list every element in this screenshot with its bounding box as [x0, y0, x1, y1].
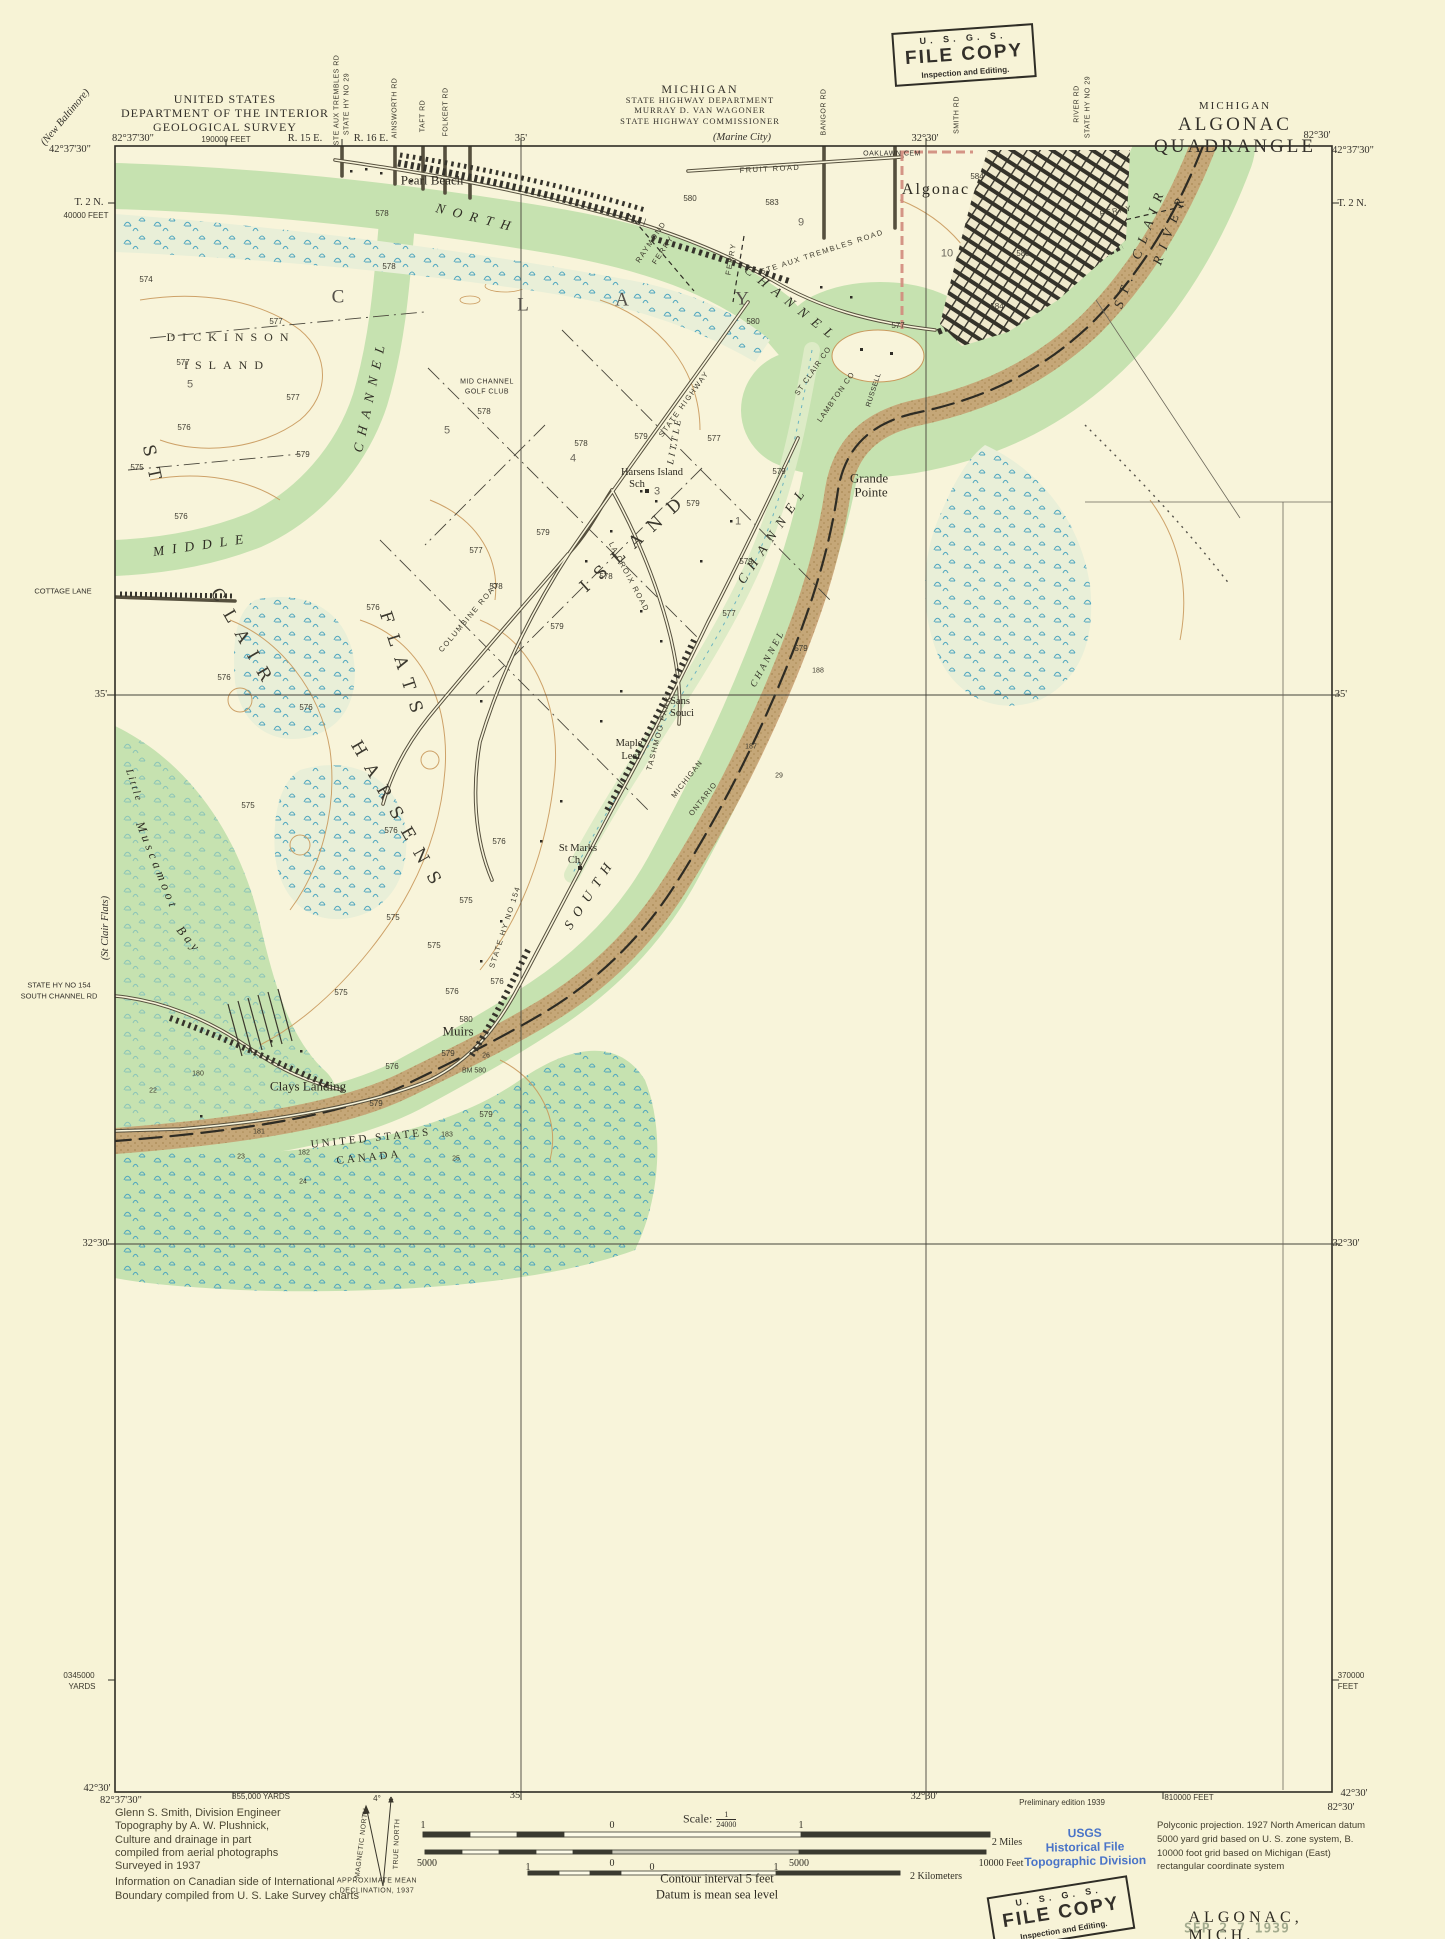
margin-label: T. 2 N. — [75, 198, 104, 209]
spot-elevation: 577 — [286, 394, 299, 402]
spot-elevation: 579 — [536, 529, 549, 537]
spot-elevation: 577 — [707, 435, 720, 443]
map-label: Maple — [616, 739, 643, 750]
scale-bars — [423, 1832, 990, 1875]
margin-label: BANGOR RD — [821, 89, 828, 136]
spot-elevation: 579 — [296, 451, 309, 459]
spot-elevation: 4 — [570, 454, 576, 465]
margin-label: Preliminary edition 1939 — [1019, 1799, 1105, 1807]
spot-elevation: 578 — [477, 408, 490, 416]
margin-label: 1 — [421, 1821, 426, 1831]
spot-elevation: 575 — [130, 464, 143, 472]
margin-label: 82°30' — [1303, 131, 1330, 142]
spot-elevation: 576 — [492, 838, 505, 846]
spot-elevation: 576 — [299, 704, 312, 712]
margin-label: APPROXIMATE MEAN — [337, 1878, 417, 1885]
margin-label: 82°37'30" — [100, 1796, 142, 1807]
margin-label: (St Clair Flats) — [101, 896, 112, 960]
margin-label: 1 — [799, 1821, 804, 1831]
spot-elevation: 578 — [382, 263, 395, 271]
spot-elevation: 576 — [490, 978, 503, 986]
spot-elevation: 575 — [386, 914, 399, 922]
spot-elevation: 583 — [765, 199, 778, 207]
historical-file-stamp: USGS Historical File Topographic Divisio… — [1024, 1825, 1146, 1869]
projection-block: Polyconic projection. 1927 North America… — [1157, 1819, 1365, 1874]
margin-label: 855,000 YARDS — [232, 1793, 290, 1801]
spot-elevation: 181 — [253, 1129, 265, 1136]
sheet-name: ALGONAC, MICH. — [1189, 1909, 1360, 1939]
margin-label: 5000 — [417, 1859, 437, 1869]
margin-label: 32°30' — [910, 1792, 937, 1803]
spot-elevation: 578 — [489, 583, 502, 591]
spot-elevation: 577 — [891, 322, 904, 330]
margin-label: 4° — [373, 1795, 381, 1803]
spot-elevation: 187 — [745, 744, 757, 751]
margin-label: 810000 FEET — [1164, 1794, 1213, 1802]
spot-elevation: BM 580 — [462, 1068, 486, 1075]
margin-label: 42°30' — [83, 1784, 110, 1795]
margin-label: T. 2 N. — [1338, 199, 1367, 210]
margin-label: 40000 FEET — [64, 212, 109, 220]
margin-label: STE AUX TREMBLES RD — [334, 55, 341, 146]
map-label: Souci — [670, 709, 694, 720]
map-label: Muirs — [442, 1025, 473, 1038]
datum-note: Datum is mean sea level — [656, 1888, 778, 1903]
spot-elevation: 577 — [269, 318, 282, 326]
spot-elevation: 575 — [427, 942, 440, 950]
spot-elevation: 183 — [441, 1132, 453, 1139]
spot-elevation: 577 — [722, 610, 735, 618]
highway-line: MICHIGAN — [620, 84, 780, 95]
spot-elevation: 578 — [375, 210, 388, 218]
file-copy-stamp-top: U. S. G. S. FILE COPY Inspection and Edi… — [891, 23, 1037, 87]
margin-label: 370000 — [1338, 1672, 1365, 1680]
map-label: Pointe — [854, 486, 887, 499]
margin-label: 35' — [510, 1791, 522, 1802]
margin-label: 35' — [515, 134, 527, 145]
map-label: St Marks — [559, 844, 597, 855]
margin-label: COTTAGE LANE — [34, 587, 91, 595]
spot-elevation: 579 — [369, 1100, 382, 1108]
highway-line: MURRAY D. VAN WAGONER — [620, 105, 780, 116]
highway-line: STATE HIGHWAY DEPARTMENT — [620, 95, 780, 106]
margin-label: 1 — [526, 1863, 531, 1873]
margin-label: 2 Miles — [992, 1838, 1022, 1848]
map-label: Grande — [850, 472, 888, 485]
margin-label: 32°30' — [82, 1239, 109, 1250]
spot-elevation: 22 — [149, 1088, 157, 1095]
map-label: Ch — [568, 856, 580, 867]
margin-label: FEET — [1338, 1683, 1358, 1691]
spot-elevation: 580 — [1016, 250, 1029, 258]
credit-line: Boundary compiled from U. S. Lake Survey… — [115, 1890, 359, 1903]
map-label: A — [615, 291, 629, 310]
spot-elevation: 584 — [970, 173, 983, 181]
spot-elevation: 579 — [794, 645, 807, 653]
margin-label: 1 — [774, 1863, 779, 1873]
map-label: Leaf — [621, 752, 640, 763]
spot-elevation: 26 — [482, 1053, 490, 1060]
channel-islet-2 — [460, 296, 480, 304]
spot-elevation: 182 — [298, 1150, 310, 1157]
spot-elevation: 9 — [798, 218, 804, 229]
margin-label: YARDS — [69, 1683, 96, 1691]
map-label: Algonac — [902, 182, 970, 198]
spot-elevation: 575 — [241, 802, 254, 810]
quad-state: MICHIGAN — [1130, 100, 1340, 112]
map-label: Harsens Island — [621, 468, 683, 479]
margin-label: 42°37'30" — [1332, 146, 1374, 157]
agency-line: UNITED STATES — [121, 92, 329, 106]
credit-line: compiled from aerial photographs — [115, 1847, 359, 1860]
credits-block: Glenn S. Smith, Division Engineer Topogr… — [115, 1807, 359, 1903]
spot-elevation: 579 — [479, 1111, 492, 1119]
spot-elevation: 576 — [385, 1063, 398, 1071]
map-graphics — [0, 0, 1445, 1939]
map-label: Clays Landing — [270, 1080, 346, 1093]
map-label: Pearl Beach — [401, 174, 463, 187]
margin-label: 2 Kilometers — [910, 1872, 962, 1882]
spot-elevation: 577 — [176, 359, 189, 367]
spot-elevation: 579 — [550, 623, 563, 631]
margin-label: AINSWORTH RD — [392, 78, 399, 139]
margin-label: SOUTH CHANNEL RD — [21, 992, 98, 1000]
spot-elevation: 25 — [452, 1156, 460, 1163]
margin-label: 42°30' — [1340, 1789, 1367, 1800]
margin-label: 0 — [610, 1859, 615, 1869]
blue-stamp-line: Topographic Division — [1024, 1853, 1146, 1869]
margin-label: 5000 — [789, 1859, 809, 1869]
spot-elevation: 188 — [812, 668, 824, 675]
margin-label: (Marine City) — [713, 133, 771, 144]
spot-elevation: 580 — [746, 318, 759, 326]
scale-numerator: 1 — [716, 1810, 736, 1820]
margin-label: 0 — [610, 1821, 615, 1831]
margin-label: 35' — [1335, 690, 1347, 701]
margin-label: 10000 Feet — [979, 1859, 1024, 1869]
scale-text: Scale:124000 — [683, 1810, 736, 1829]
margin-label: DECLINATION, 1937 — [340, 1888, 415, 1895]
spot-elevation: 576 — [384, 827, 397, 835]
margin-label: 42°37'30" — [49, 145, 91, 156]
margin-label: 82°30' — [1327, 1803, 1354, 1814]
map-label: OAKLAWN CEM — [863, 151, 921, 158]
margin-label: 35' — [95, 690, 107, 701]
margin-label: 190000 FEET — [201, 136, 250, 144]
credit-line: Information on Canadian side of Internat… — [115, 1876, 359, 1889]
margin-label: 32°30' — [1332, 1239, 1359, 1250]
map-label: GOLF CLUB — [465, 389, 509, 396]
spot-elevation: 578 — [574, 440, 587, 448]
spot-elevation: 1 — [735, 517, 741, 528]
spot-elevation: 580 — [459, 1016, 472, 1024]
highway-dept-heading: MICHIGAN STATE HIGHWAY DEPARTMENT MURRAY… — [620, 84, 780, 126]
spot-elevation: 577 — [469, 547, 482, 555]
map-label: DICKINSON — [167, 331, 296, 343]
margin-label: TAFT RD — [420, 100, 427, 132]
spot-elevation: 578 — [599, 573, 612, 581]
spot-elevation: 3 — [654, 487, 660, 498]
projection-line: Polyconic projection. 1927 North America… — [1157, 1819, 1365, 1833]
credit-line: Culture and drainage in part — [115, 1834, 359, 1847]
spot-elevation: 180 — [192, 1071, 204, 1078]
spot-elevation: 576 — [177, 424, 190, 432]
spot-elevation: 576 — [174, 513, 187, 521]
credit-line: Topography by A. W. Plushnick, — [115, 1820, 359, 1833]
map-label: C — [332, 288, 345, 307]
scale-denominator: 24000 — [716, 1820, 736, 1829]
margin-label: RIVER RD — [1074, 85, 1081, 122]
spot-elevation: 576 — [445, 988, 458, 996]
margin-label: R. 16 E. — [354, 134, 388, 145]
spot-elevation: 576 — [217, 674, 230, 682]
margin-label: 82°37'30" — [112, 134, 154, 145]
projection-line: 5000 yard grid based on U. S. zone syste… — [1157, 1833, 1365, 1847]
scale-prefix: Scale: — [683, 1811, 712, 1825]
spot-elevation: 580 — [683, 195, 696, 203]
margin-label: FOLKERT RD — [443, 87, 450, 136]
spot-elevation: 29 — [775, 773, 783, 780]
usgs-agency-heading: UNITED STATES DEPARTMENT OF THE INTERIOR… — [121, 92, 329, 134]
projection-line: rectangular coordinate system — [1157, 1860, 1365, 1874]
map-label: Sch — [629, 480, 645, 491]
projection-line: 10000 foot grid based on Michigan (East) — [1157, 1847, 1365, 1861]
map-label: MID CHANNEL — [460, 379, 514, 386]
spot-elevation: 5 — [444, 426, 450, 437]
margin-label: 32°30' — [911, 134, 938, 145]
spot-elevation: 575 — [334, 989, 347, 997]
spot-elevation: 579 — [739, 558, 752, 566]
credit-line: Surveyed in 1937 — [115, 1860, 359, 1873]
map-label: ISLAND — [184, 359, 270, 371]
spot-elevation: 579 — [772, 468, 785, 476]
topo-map-sheet: UNITED STATES DEPARTMENT OF THE INTERIOR… — [0, 0, 1445, 1939]
spot-elevation: 579 — [634, 433, 647, 441]
map-label: Sans — [670, 697, 690, 708]
spot-elevation: 5 — [187, 380, 193, 391]
margin-label: STATE HY NO 154 — [27, 981, 90, 989]
margin-label: 0345000 — [63, 1672, 94, 1680]
spot-elevation: 574 — [139, 276, 152, 284]
contour-interval-note: Contour interval 5 feet — [660, 1872, 774, 1887]
margin-label: R. 15 E. — [288, 134, 322, 145]
spot-elevation: 23 — [237, 1154, 245, 1161]
spot-elevation: 10 — [941, 249, 953, 260]
spot-elevation: 576 — [366, 604, 379, 612]
spot-elevation: 584 — [990, 303, 1003, 311]
margin-label: 0 — [650, 1863, 655, 1873]
credit-line: Glenn S. Smith, Division Engineer — [115, 1807, 359, 1820]
highway-line: STATE HIGHWAY COMMISSIONER — [620, 116, 780, 127]
margin-label: STATE HY NO 29 — [1085, 76, 1092, 138]
spot-elevation: 579 — [441, 1050, 454, 1058]
spot-elevation: 24 — [299, 1179, 307, 1186]
map-label: Y — [735, 290, 749, 309]
spot-elevation: 575 — [459, 897, 472, 905]
spot-elevation: 579 — [686, 500, 699, 508]
margin-label: SMITH RD — [954, 96, 961, 134]
agency-line: DEPARTMENT OF THE INTERIOR — [121, 106, 329, 120]
margin-label: STATE HY NO 29 — [344, 73, 351, 135]
map-label: L — [517, 296, 529, 315]
